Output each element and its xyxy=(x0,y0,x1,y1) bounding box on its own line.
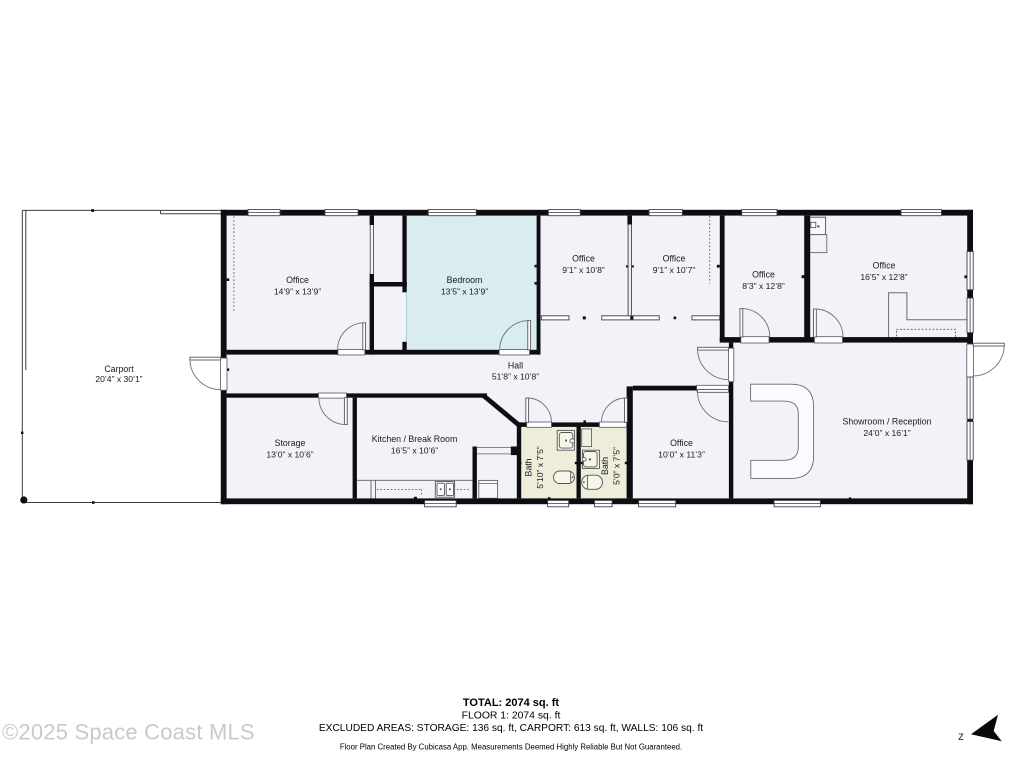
svg-text:z: z xyxy=(958,729,964,743)
svg-text:Bath: Bath xyxy=(524,458,534,476)
svg-text:Bedroom: Bedroom xyxy=(447,275,483,285)
svg-text:5’10” x 7’5”: 5’10” x 7’5” xyxy=(535,446,545,489)
svg-text:Showroom / Reception: Showroom / Reception xyxy=(843,417,932,427)
svg-text:24’0” x 16’1”: 24’0” x 16’1” xyxy=(863,428,910,438)
svg-text:Hall: Hall xyxy=(508,361,523,371)
svg-text:TOTAL: 2074 sq. ft: TOTAL: 2074 sq. ft xyxy=(463,697,560,709)
svg-text:Floor Plan Created By Cubicasa: Floor Plan Created By Cubicasa App. Meas… xyxy=(340,743,682,752)
svg-text:13’5” x 13’9”: 13’5” x 13’9” xyxy=(441,287,488,297)
svg-text:Office: Office xyxy=(670,438,693,448)
svg-text:16’5” x 10’6”: 16’5” x 10’6” xyxy=(391,446,438,456)
svg-text:FLOOR 1: 2074 sq. ft: FLOOR 1: 2074 sq. ft xyxy=(462,711,561,722)
svg-text:Kitchen / Break Room: Kitchen / Break Room xyxy=(372,434,458,444)
svg-text:5’0” x 7’5”: 5’0” x 7’5” xyxy=(612,447,622,485)
svg-text:9’1” x 10’8”: 9’1” x 10’8” xyxy=(562,265,605,275)
svg-text:10’0” x 11’3”: 10’0” x 11’3” xyxy=(658,450,705,460)
svg-text:Bath: Bath xyxy=(600,457,610,475)
svg-text:Carport: Carport xyxy=(104,364,134,374)
svg-text:16’5” x 12’8”: 16’5” x 12’8” xyxy=(860,272,907,282)
svg-text:EXCLUDED AREAS: STORAGE: 136 s: EXCLUDED AREAS: STORAGE: 136 sq. ft, CAR… xyxy=(319,723,703,734)
svg-text:Storage: Storage xyxy=(275,438,306,448)
svg-text:Office: Office xyxy=(873,261,896,271)
svg-text:9’1” x 10’7”: 9’1” x 10’7” xyxy=(653,265,696,275)
svg-text:13’0” x 10’6”: 13’0” x 10’6” xyxy=(266,450,313,460)
svg-text:Office: Office xyxy=(663,254,686,264)
svg-text:Office: Office xyxy=(572,254,595,264)
svg-text:14’9” x 13’9”: 14’9” x 13’9” xyxy=(274,287,321,297)
svg-text:51’8” x 10’8”: 51’8” x 10’8” xyxy=(492,372,539,382)
svg-text:8’3” x 12’8”: 8’3” x 12’8” xyxy=(742,281,785,291)
svg-text:20’4” x 30’1”: 20’4” x 30’1” xyxy=(95,374,142,384)
svg-text:Office: Office xyxy=(752,270,775,280)
svg-text:©2025 Space Coast MLS: ©2025 Space Coast MLS xyxy=(2,720,255,745)
svg-text:Office: Office xyxy=(286,275,309,285)
